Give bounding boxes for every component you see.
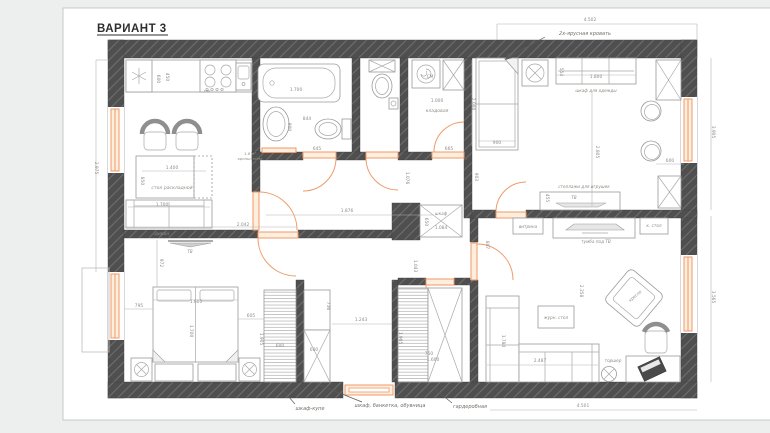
kids-wardrobe-label: шкаф для одежды bbox=[575, 88, 617, 93]
dimension-label: 1.600 bbox=[190, 299, 203, 305]
page-title: ВАРИАНТ 3 bbox=[97, 23, 168, 35]
dimension-label: 2.975 bbox=[93, 162, 99, 175]
kids-wardrobe bbox=[556, 58, 636, 84]
dimension-label: 1.905 bbox=[397, 332, 403, 345]
pouf-icon bbox=[641, 141, 661, 161]
wc-corner-sink-icon bbox=[389, 98, 398, 109]
dimension-label: 900 bbox=[286, 123, 292, 132]
nightstand-lamp-icon bbox=[131, 358, 152, 381]
kitchen-window bbox=[108, 107, 124, 173]
dimension-label: 554 bbox=[558, 68, 564, 77]
tv-stand-label: тумба под ТВ bbox=[581, 239, 611, 244]
dimension-label: 903 bbox=[473, 173, 479, 182]
kitchen-table-label: стол раскладной bbox=[151, 185, 192, 191]
wall-bath-south-2 bbox=[336, 152, 366, 160]
dimension-label: 600 bbox=[310, 347, 319, 353]
dimension-label: 605 bbox=[247, 313, 256, 319]
dimension-label: 844 bbox=[303, 116, 312, 122]
dimension-label: 1.043 bbox=[412, 260, 418, 273]
wall-kitchen-south-1 bbox=[124, 230, 258, 238]
wall-closet-north-1 bbox=[398, 278, 426, 285]
ceiling-light-icon bbox=[522, 60, 548, 86]
dimension-label: 795 bbox=[135, 303, 144, 309]
kids-tv-label: ТВ bbox=[571, 195, 576, 200]
entry-wardrobe-callout: шкаф, банкетка, обувница bbox=[355, 403, 426, 409]
bedroom-sliding-wardrobe bbox=[264, 290, 296, 382]
living-room-window bbox=[681, 255, 697, 333]
dimension-label: 1.243 bbox=[355, 317, 368, 323]
dimension-label: 736 bbox=[325, 302, 331, 311]
wall-closet-north-2 bbox=[454, 278, 470, 285]
dimension-label: 2.805 bbox=[594, 146, 600, 159]
wall-bedroom-hall bbox=[296, 280, 304, 382]
dimension-label: 2.000 bbox=[470, 98, 476, 111]
floor-lamp-icon bbox=[602, 367, 617, 382]
dimension-label: 972 bbox=[158, 259, 164, 268]
dimension-label: 3.905 bbox=[710, 126, 716, 139]
wall-right bbox=[681, 40, 697, 398]
storage-room bbox=[412, 60, 464, 90]
wall-wc-storage bbox=[400, 58, 408, 152]
dimension-label: 600 bbox=[276, 343, 285, 349]
dimension-label: 1.876 bbox=[341, 208, 354, 214]
desk bbox=[626, 356, 680, 382]
dimension-label: 600 bbox=[155, 75, 161, 84]
dimension-label: 750 bbox=[425, 351, 434, 357]
dimension-label: 1.000 bbox=[431, 98, 444, 104]
dimension-label: 1.905 bbox=[258, 333, 264, 346]
structural-column bbox=[392, 203, 420, 240]
wall-kitchen-south-2 bbox=[298, 230, 392, 238]
hall-wardrobe-label: шкаф bbox=[435, 211, 448, 216]
floor-lamp-label: торшер bbox=[605, 358, 622, 363]
storage-room-label: кладовая bbox=[426, 109, 449, 114]
kitchen-sofa bbox=[126, 200, 212, 228]
dimension-label: 1.600 bbox=[427, 357, 440, 363]
dimension-label: 1.084 bbox=[435, 225, 448, 231]
fridge-icon bbox=[126, 60, 152, 92]
bunk-bed-callout: 2х-ярусная кровать bbox=[559, 31, 611, 37]
toilet-icon bbox=[315, 119, 351, 139]
dimension-label: 1.700 bbox=[156, 202, 169, 208]
dimension-label: 4.502 bbox=[584, 17, 597, 23]
wall-bottom-right bbox=[395, 382, 697, 398]
kitchen-sofa-label: диван bbox=[154, 232, 170, 237]
entry-door bbox=[345, 385, 393, 395]
pouf-icon bbox=[641, 101, 661, 121]
wall-living-left-top bbox=[470, 218, 478, 242]
tv-stand bbox=[553, 218, 635, 238]
walk-in-closet-callout: гардеробная bbox=[453, 404, 487, 410]
dimension-label: 4.501 bbox=[577, 403, 590, 409]
kitchen-sink-icon bbox=[236, 63, 251, 90]
wall-storage-south bbox=[398, 152, 432, 160]
floor-plan-page: ВАРИАНТ 3 bbox=[0, 0, 770, 433]
dimension-label: 645 bbox=[313, 146, 322, 152]
dimension-label: 2.487 bbox=[534, 358, 547, 364]
dimension-label: 850 bbox=[139, 177, 145, 186]
dimension-label: 2.358 bbox=[578, 285, 584, 298]
wall-bottom-left bbox=[108, 382, 343, 398]
wall-left bbox=[108, 40, 124, 398]
bunk-bed bbox=[476, 58, 518, 150]
wall-top bbox=[108, 40, 697, 58]
wall-living-left-bottom bbox=[470, 280, 478, 382]
kitchen-tv-label: ТВ bbox=[187, 249, 192, 254]
dimension-label: 900 bbox=[493, 140, 502, 146]
dimension-label: 2.042 bbox=[237, 222, 250, 228]
toy-shelves-label: стеллажи для игрушек bbox=[558, 184, 610, 189]
kids-room-window bbox=[681, 97, 697, 163]
variant-title: ВАРИАНТ 3 bbox=[97, 23, 167, 35]
dimension-label: 1.780 bbox=[500, 335, 506, 348]
dimension-label: 455 bbox=[544, 194, 550, 203]
nightstand-lamp-icon bbox=[239, 358, 260, 381]
bedroom bbox=[131, 287, 296, 382]
wall-bath-wc bbox=[352, 58, 360, 152]
bath-sink-icon bbox=[263, 107, 289, 141]
dimension-label: 1.076 bbox=[404, 172, 410, 185]
washing-machine-label: СМ bbox=[427, 74, 434, 79]
coffee-table-label: журн. стол bbox=[543, 315, 569, 320]
dimension-label: 450 bbox=[164, 73, 170, 82]
storage-cabinet bbox=[443, 60, 464, 90]
dimension-label: 600 bbox=[666, 158, 675, 164]
wall-storage-kids bbox=[464, 58, 472, 218]
wall-kids-south-1 bbox=[472, 210, 496, 218]
microwave-label: свч bbox=[204, 88, 211, 93]
towel-warmer bbox=[262, 148, 296, 153]
vitrine-label: витрина bbox=[519, 224, 538, 229]
dimension-label: 1.700 bbox=[188, 325, 194, 338]
toy-shelves bbox=[540, 192, 620, 210]
bathtub-icon bbox=[258, 64, 340, 102]
dimension-label: 1.700 bbox=[290, 87, 303, 93]
dimension-label: 1.800 bbox=[590, 74, 603, 80]
wardrobe-kupe-callout: шкаф-купе bbox=[295, 406, 324, 412]
wall-kids-south-2 bbox=[526, 210, 697, 218]
corner-cabinet bbox=[656, 60, 681, 100]
dimension-label: 3.565 bbox=[710, 291, 716, 304]
bedroom-window bbox=[108, 272, 124, 340]
side-table-label: к. стол bbox=[646, 223, 661, 228]
dimension-label: 1.400 bbox=[166, 165, 179, 171]
towel-note-line-2: кронштейна bbox=[238, 156, 263, 161]
dimension-label: 665 bbox=[445, 146, 454, 152]
dimension-label: 650 bbox=[423, 218, 429, 227]
corner-cabinet bbox=[658, 176, 681, 208]
walk-in-closet-units bbox=[398, 288, 462, 382]
dimension-label: 807 bbox=[484, 241, 490, 250]
